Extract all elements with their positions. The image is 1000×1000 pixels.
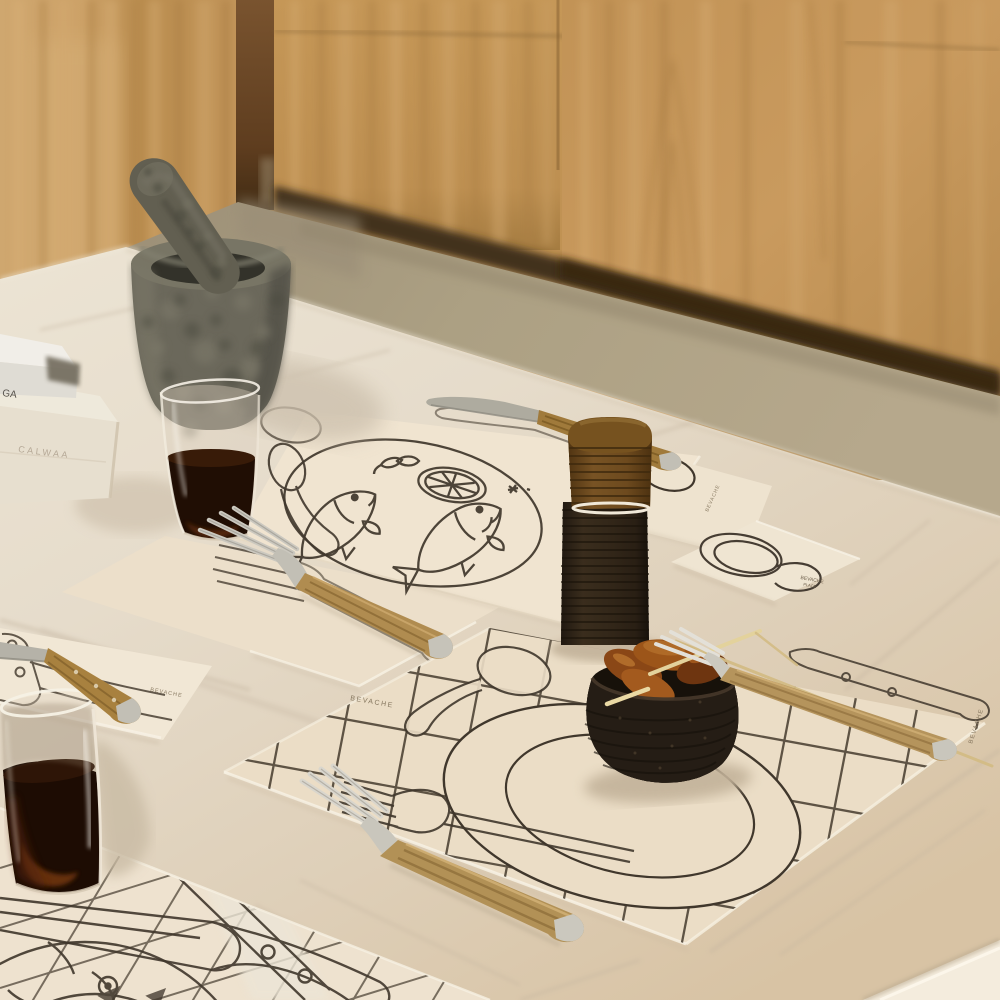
svg-text:GA: GA — [2, 388, 18, 401]
